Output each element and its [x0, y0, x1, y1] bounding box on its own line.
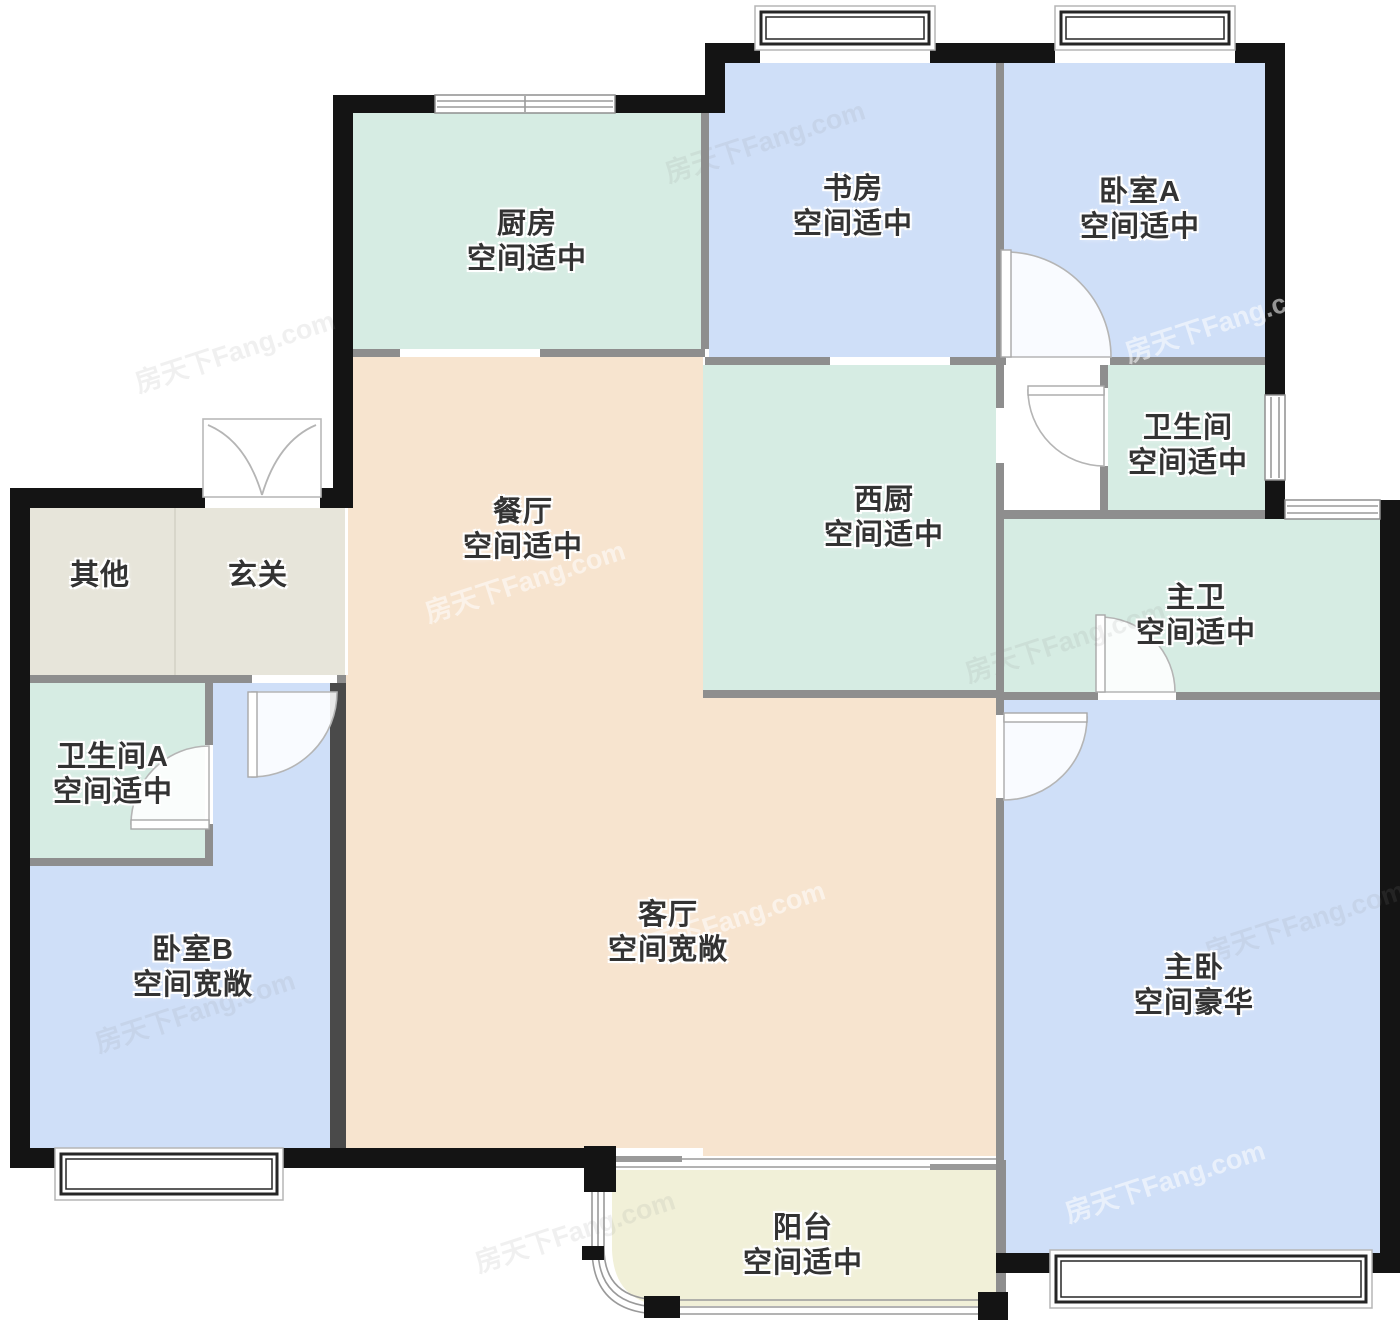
room-name: 卫生间	[1128, 411, 1248, 446]
wall-ext-kitchen-left	[333, 95, 353, 508]
room-label-living-room: 客厅 空间宽敞	[608, 898, 728, 968]
room-label-bedroom-a: 卧室A 空间适中	[1080, 175, 1200, 245]
room-name: 厨房	[467, 207, 587, 242]
wall-bathroom-left-b	[1100, 466, 1108, 510]
bathroom-door	[1028, 386, 1104, 466]
wall-ext-bottom-a	[10, 1148, 55, 1168]
wall-ext-master-bottom-a	[996, 1253, 1054, 1273]
bedroom-b-bay-window	[55, 1148, 283, 1200]
room-label-balcony: 阳台 空间适中	[743, 1211, 863, 1281]
room-name: 餐厅	[463, 495, 583, 530]
bathroom-window	[1265, 395, 1285, 480]
room-name: 阳台	[743, 1211, 863, 1246]
room-note: 空间宽敞	[133, 968, 253, 1003]
foyer-dining-boundary	[345, 508, 348, 675]
wall-westkitchen-living	[703, 690, 1004, 698]
wall-ext-entry-b	[320, 488, 353, 508]
room-label-dining-room: 餐厅 空间适中	[463, 495, 583, 565]
room-label-foyer: 玄关	[228, 559, 288, 594]
room-label-other: 其他	[70, 559, 130, 594]
wall-westkitchen-right-a	[996, 365, 1004, 408]
wall-ext-right-lower	[1380, 500, 1400, 1273]
wall-ext-kitchen-top-b	[615, 95, 705, 113]
room-label-study: 书房 空间适中	[793, 172, 913, 242]
balcony-post-right	[978, 1292, 1008, 1320]
dining-living-floor-left	[346, 357, 703, 1148]
room-note: 空间适中	[1080, 210, 1200, 245]
room-note: 空间适中	[824, 518, 944, 553]
study-bay-window	[755, 6, 935, 50]
wall-kitchen-dining-a	[345, 349, 400, 357]
balcony-sliding-door	[616, 1156, 996, 1170]
wall-westkitchen-right-b	[996, 463, 1004, 692]
room-name: 卫生间A	[53, 740, 173, 775]
room-label-master-bath: 主卫 空间适中	[1136, 581, 1256, 651]
wall-kitchen-dining-b	[540, 349, 705, 357]
bedroom-a-bay-window	[1055, 6, 1235, 50]
room-name: 主卧	[1134, 951, 1254, 986]
room-note: 空间适中	[53, 775, 173, 810]
room-name: 书房	[793, 172, 913, 207]
wall-study-westkitchen-a	[705, 357, 830, 365]
balcony-post-bottom	[644, 1296, 680, 1318]
wall-bathroom-a-bottom	[30, 858, 213, 866]
room-note: 空间豪华	[1134, 986, 1254, 1021]
wall-bedroom-b-living	[330, 683, 346, 1148]
wall-foyer-bedroom-b-a	[30, 675, 252, 683]
room-name: 主卫	[1136, 581, 1256, 616]
wall-ext-top-b	[930, 43, 1055, 63]
room-label-bedroom-b: 卧室B 空间宽敞	[133, 933, 253, 1003]
room-name: 卧室A	[1080, 175, 1200, 210]
wall-study-westkitchen-b	[950, 357, 1006, 365]
room-name: 其他	[70, 559, 130, 594]
wall-foyer-bedroom-b-b	[337, 675, 346, 683]
room-name: 西厨	[824, 483, 944, 518]
wall-bathroom-a-right-a	[205, 683, 213, 745]
wall-ext-bottom-b	[283, 1148, 616, 1168]
wall-master-bedroom-left-a	[996, 700, 1004, 715]
kitchen-window	[435, 95, 615, 113]
wall-balcony-right	[996, 1160, 1006, 1300]
foyer-other-divider	[174, 508, 176, 675]
room-name: 客厅	[608, 898, 728, 933]
room-note: 空间适中	[793, 207, 913, 242]
wall-masterbath-bottom-b	[1176, 692, 1380, 700]
wall-ext-master-bottom-b	[1368, 1253, 1400, 1273]
wall-ext-top-a	[705, 43, 760, 63]
master-bedroom-bay-window	[1050, 1250, 1372, 1308]
balcony-post-top	[584, 1146, 616, 1192]
room-note: 空间适中	[743, 1246, 863, 1281]
wall-bedroom-a-bath	[1110, 357, 1285, 365]
room-label-bathroom: 卫生间 空间适中	[1128, 411, 1248, 481]
wall-ext-left	[10, 488, 30, 1168]
wall-bathroom-left-a	[1100, 365, 1108, 388]
wall-masterbath-top	[996, 510, 1285, 519]
wall-ext-right-upper-b	[1265, 480, 1285, 519]
wall-kitchen-study	[701, 113, 709, 349]
balcony-post-mid	[582, 1246, 604, 1260]
entrance-double-door	[203, 419, 321, 497]
wall-master-bedroom-left-b	[996, 798, 1004, 1160]
room-note: 空间适中	[1128, 446, 1248, 481]
living-floor-right	[703, 698, 996, 1160]
room-note: 空间适中	[1136, 616, 1256, 651]
room-note: 空间适中	[463, 530, 583, 565]
wall-ext-kitchen-top-a	[333, 95, 435, 113]
room-label-bathroom-a: 卫生间A 空间适中	[53, 740, 173, 810]
room-label-kitchen: 厨房 空间适中	[467, 207, 587, 277]
floor-plan: 房天下Fang.com 房天下Fang.com 房天下Fang.com 房天下F…	[0, 0, 1400, 1332]
wall-ext-right-upper-a	[1265, 43, 1285, 395]
room-note: 空间适中	[467, 242, 587, 277]
room-label-west-kitchen: 西厨 空间适中	[824, 483, 944, 553]
wall-masterbath-bottom-a	[996, 692, 1098, 700]
wall-ext-entry-a	[10, 488, 205, 508]
room-name: 卧室B	[133, 933, 253, 968]
room-note: 空间宽敞	[608, 933, 728, 968]
room-name: 玄关	[228, 559, 288, 594]
master-bath-window	[1285, 500, 1380, 519]
room-label-master-bedroom: 主卧 空间豪华	[1134, 951, 1254, 1021]
